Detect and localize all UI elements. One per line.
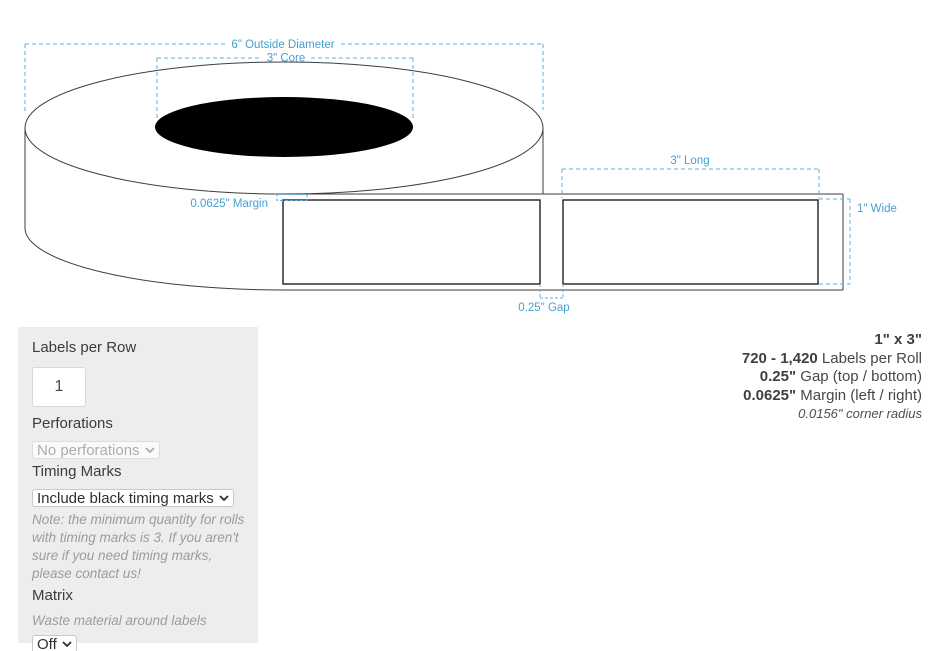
label-size: 1" x 3" — [742, 331, 922, 350]
roll-core — [155, 97, 413, 157]
outside-diameter-label: 6" Outside Diameter — [231, 39, 334, 51]
label-spec-summary: 1" x 3" 720 - 1,420 Labels per Roll 0.25… — [742, 331, 922, 424]
corner-radius: 0.0156" corner radius — [742, 405, 922, 424]
roll-diagram: 6" Outside Diameter 3" Core 3" Long 1" W… — [0, 0, 934, 322]
labels-per-roll-value: 720 - 1,420 — [742, 350, 818, 367]
matrix-select[interactable]: Off — [32, 635, 77, 651]
label-rect-2 — [563, 200, 818, 284]
roll-bottom-arc — [25, 228, 284, 290]
matrix-heading: Matrix — [32, 587, 244, 604]
matrix-select-value: Off — [37, 636, 57, 651]
timing-marks-select-value: Include black timing marks — [37, 490, 214, 507]
label-width-label: 1" Wide — [857, 203, 897, 215]
chevron-down-icon — [219, 495, 229, 501]
perforations-heading: Perforations — [32, 415, 244, 432]
margin-label: 0.0625" Margin — [190, 198, 268, 210]
timing-marks-select[interactable]: Include black timing marks — [32, 489, 234, 507]
margin-spec: 0.0625" Margin (left / right) — [742, 387, 922, 406]
labels-per-roll: 720 - 1,420 Labels per Roll — [742, 350, 922, 369]
gap-label: 0.25" Gap — [518, 302, 569, 314]
gap-dimension — [540, 284, 563, 298]
labels-per-row-heading: Labels per Row — [32, 339, 244, 356]
timing-marks-note: Note: the minimum quantity for rolls wit… — [32, 511, 248, 583]
labels-per-row-input[interactable] — [32, 367, 86, 407]
chevron-down-icon — [62, 641, 72, 647]
label-roll-configurator: 6" Outside Diameter 3" Core 3" Long 1" W… — [0, 0, 934, 651]
label-rect-1 — [283, 200, 540, 284]
gap-spec-value: 0.25" — [760, 368, 796, 385]
gap-spec: 0.25" Gap (top / bottom) — [742, 368, 922, 387]
gap-spec-text: Gap (top / bottom) — [796, 368, 922, 385]
labels-per-roll-text: Labels per Roll — [818, 350, 922, 367]
margin-spec-value: 0.0625" — [743, 387, 796, 404]
options-panel: Labels per Row Perforations No perforati… — [18, 327, 258, 643]
core-label: 3" Core — [267, 53, 306, 65]
matrix-description: Waste material around labels — [32, 613, 244, 629]
chevron-down-icon — [145, 447, 155, 453]
margin-spec-text: Margin (left / right) — [796, 387, 922, 404]
perforations-select[interactable]: No perforations — [32, 441, 160, 459]
timing-marks-heading: Timing Marks — [32, 463, 244, 480]
label-width-dimension — [819, 199, 850, 284]
label-length-label: 3" Long — [670, 155, 709, 167]
perforations-select-value: No perforations — [37, 442, 140, 459]
